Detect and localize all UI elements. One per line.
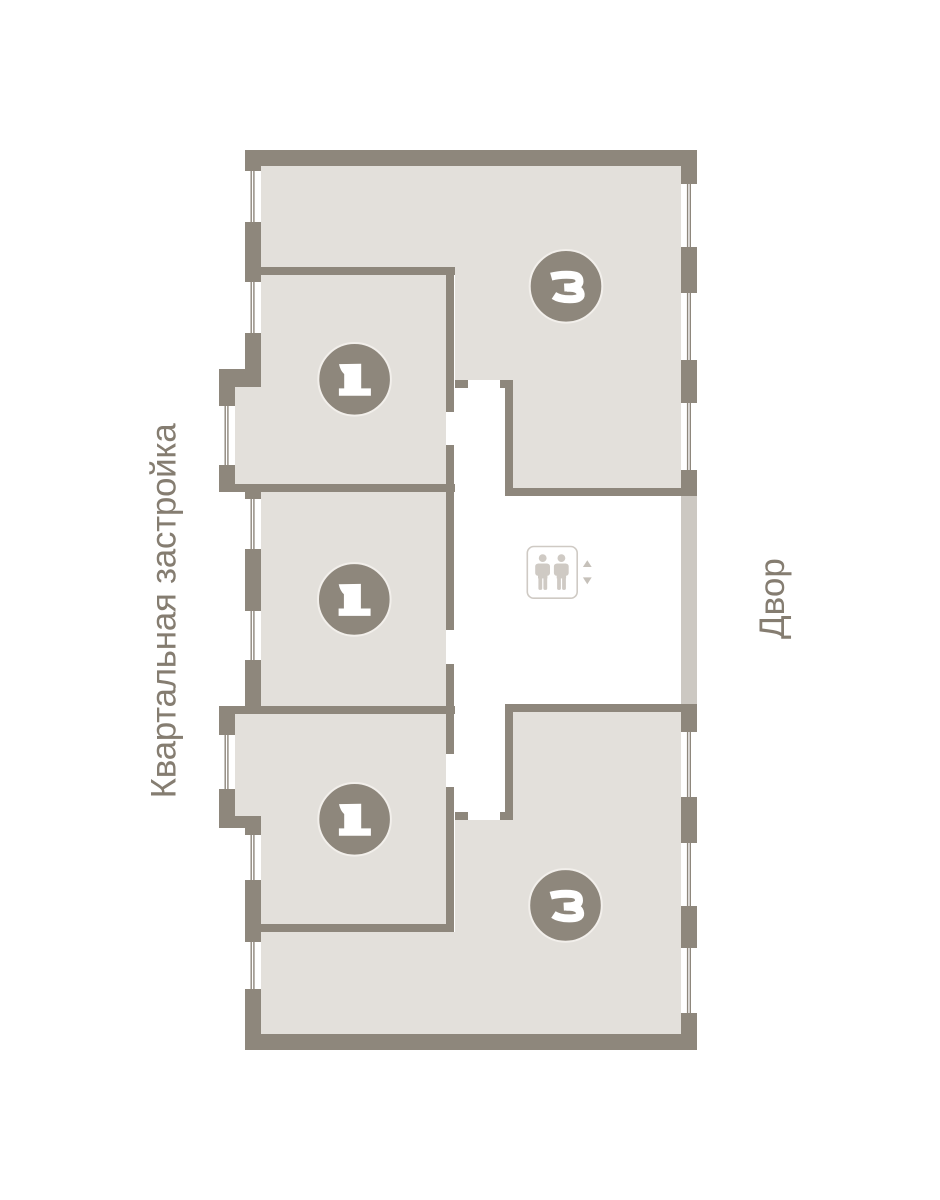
svg-text:Квартальная застройка: Квартальная застройка [145, 423, 184, 799]
svg-text:Двор: Двор [753, 558, 792, 639]
